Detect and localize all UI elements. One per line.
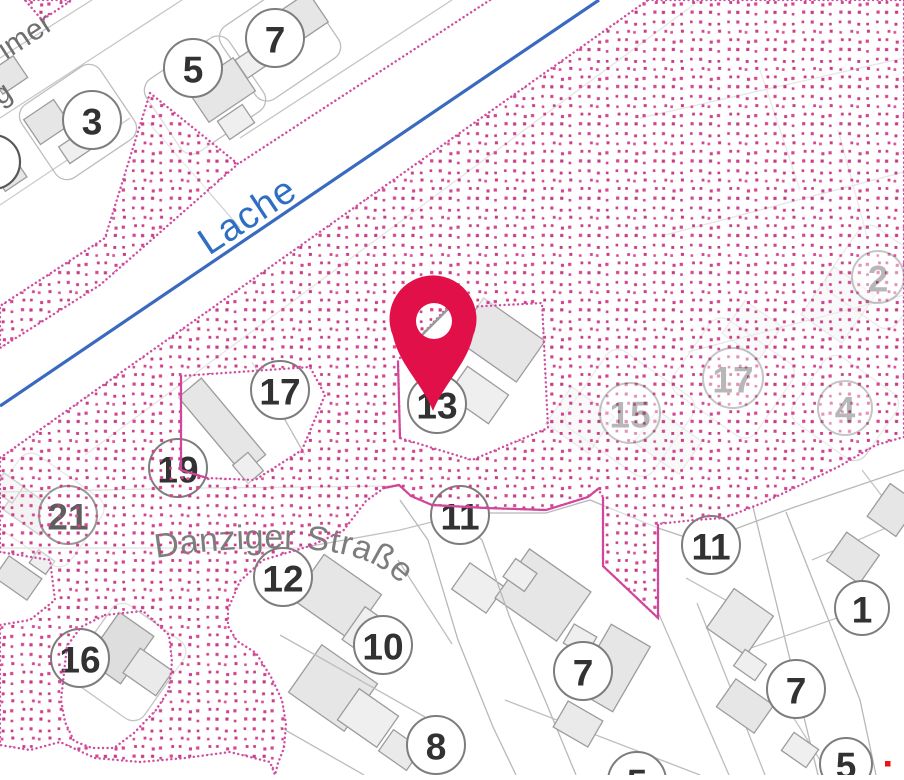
- svg-text:7: 7: [786, 671, 807, 712]
- svg-text:11: 11: [691, 527, 730, 568]
- svg-text:4: 4: [835, 390, 856, 431]
- svg-text:3: 3: [82, 102, 103, 143]
- svg-text:17: 17: [712, 360, 753, 401]
- svg-text:5: 5: [183, 50, 204, 91]
- svg-text:2: 2: [868, 259, 889, 300]
- svg-text:15: 15: [609, 395, 650, 436]
- svg-text:5: 5: [836, 746, 857, 776]
- svg-text:8: 8: [426, 727, 447, 768]
- svg-text:12: 12: [262, 559, 303, 600]
- svg-text:7: 7: [573, 653, 594, 694]
- svg-text:10: 10: [362, 627, 403, 668]
- svg-text:7: 7: [265, 20, 286, 61]
- svg-text:1: 1: [852, 590, 873, 631]
- svg-text:5: 5: [627, 763, 648, 776]
- svg-text:17: 17: [259, 372, 300, 413]
